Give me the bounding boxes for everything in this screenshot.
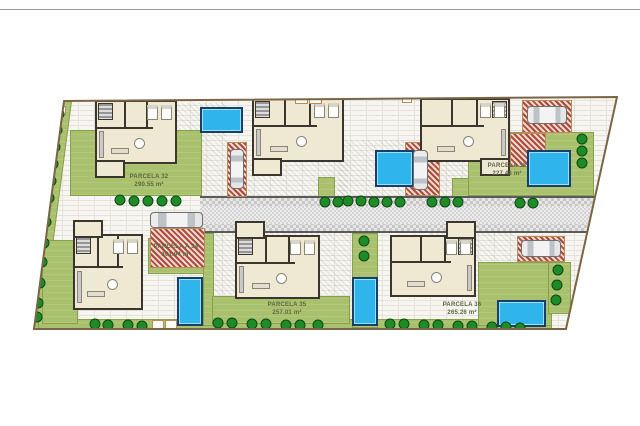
table [296, 136, 307, 147]
gate [57, 106, 66, 115]
bed [446, 240, 457, 255]
bed [147, 105, 158, 120]
sofa [111, 148, 129, 154]
swimming-pool [352, 277, 378, 326]
table [107, 279, 118, 290]
kitchen [256, 129, 261, 156]
parcel-name: PARCELA 32 [110, 173, 188, 181]
stairs [238, 238, 253, 255]
gate [152, 320, 164, 329]
kitchen [77, 271, 82, 303]
table [431, 272, 442, 283]
bed [290, 240, 301, 255]
parcel-area: 257.01 m² [246, 309, 328, 317]
parcel-name: PARCELA 35 [246, 301, 328, 309]
bed [304, 240, 315, 255]
wing [235, 221, 265, 239]
villa-bottom-middle [235, 235, 320, 299]
car [150, 212, 203, 228]
parcel-label-36: PARCELA 36 265.26 m² [428, 301, 496, 317]
parcel-area: 301.94 m² [147, 251, 205, 259]
parcel-name: PARCELA 36 [428, 301, 496, 309]
sofa [407, 281, 425, 287]
kitchen [467, 265, 472, 291]
table [463, 136, 474, 147]
sofa [252, 283, 270, 289]
wing [73, 220, 103, 238]
parcel-label-a34: PARCELA A 34 301.94 m² [147, 243, 205, 259]
swimming-pool [375, 150, 414, 187]
table [276, 273, 287, 284]
parcel-name: PARCELA A 34 [147, 243, 205, 251]
parcel-label-32: PARCELA 32 290.55 m² [110, 173, 188, 189]
bed [161, 105, 172, 120]
car [521, 240, 561, 257]
villa-top-right [420, 98, 510, 162]
parcel-label-33: PARCELA 33 227.48 m² [475, 162, 539, 178]
kitchen [239, 266, 244, 293]
bed [314, 103, 325, 118]
swimming-pool [177, 277, 203, 326]
parcel-label-35: PARCELA 35 257.01 m² [246, 301, 328, 317]
parcel-area: 265.26 m² [428, 309, 496, 317]
table [134, 138, 145, 149]
parcel-area: 290.55 m² [110, 181, 188, 189]
gate [295, 94, 308, 104]
site-plan: PARCELA 32 290.55 m² PARCELA 33 227.48 m… [0, 0, 640, 426]
villa-bottom-right [390, 235, 476, 297]
bed [480, 103, 491, 118]
page-top-rule [0, 9, 640, 10]
stairs [255, 101, 270, 118]
stairs [76, 237, 91, 254]
gate [309, 94, 322, 104]
gate [165, 320, 177, 329]
car [230, 149, 244, 189]
kitchen [99, 131, 104, 158]
site-plan-page: PARCELA 32 290.55 m² PARCELA 33 227.48 m… [0, 0, 640, 426]
villa-top-left [95, 100, 177, 164]
kitchen [501, 129, 506, 156]
car [527, 106, 567, 124]
gate [402, 93, 412, 103]
bed [328, 103, 339, 118]
bed [494, 103, 505, 118]
parcel-area: 227.48 m² [475, 170, 539, 178]
swimming-pool [200, 107, 243, 133]
wing [252, 158, 282, 176]
parcel-name: PARCELA 33 [475, 162, 539, 170]
sofa [270, 146, 288, 152]
bed [460, 240, 471, 255]
swimming-pool [497, 300, 546, 327]
garden-strip [548, 262, 571, 314]
wing [446, 221, 476, 239]
villa-top-middle [252, 98, 344, 162]
garden-patch [318, 177, 335, 197]
villa-bottom-left [73, 234, 143, 310]
stairs [98, 103, 113, 120]
sofa [87, 291, 105, 297]
bed [127, 239, 138, 254]
bed [113, 239, 124, 254]
car [413, 150, 428, 190]
sofa [437, 146, 455, 152]
